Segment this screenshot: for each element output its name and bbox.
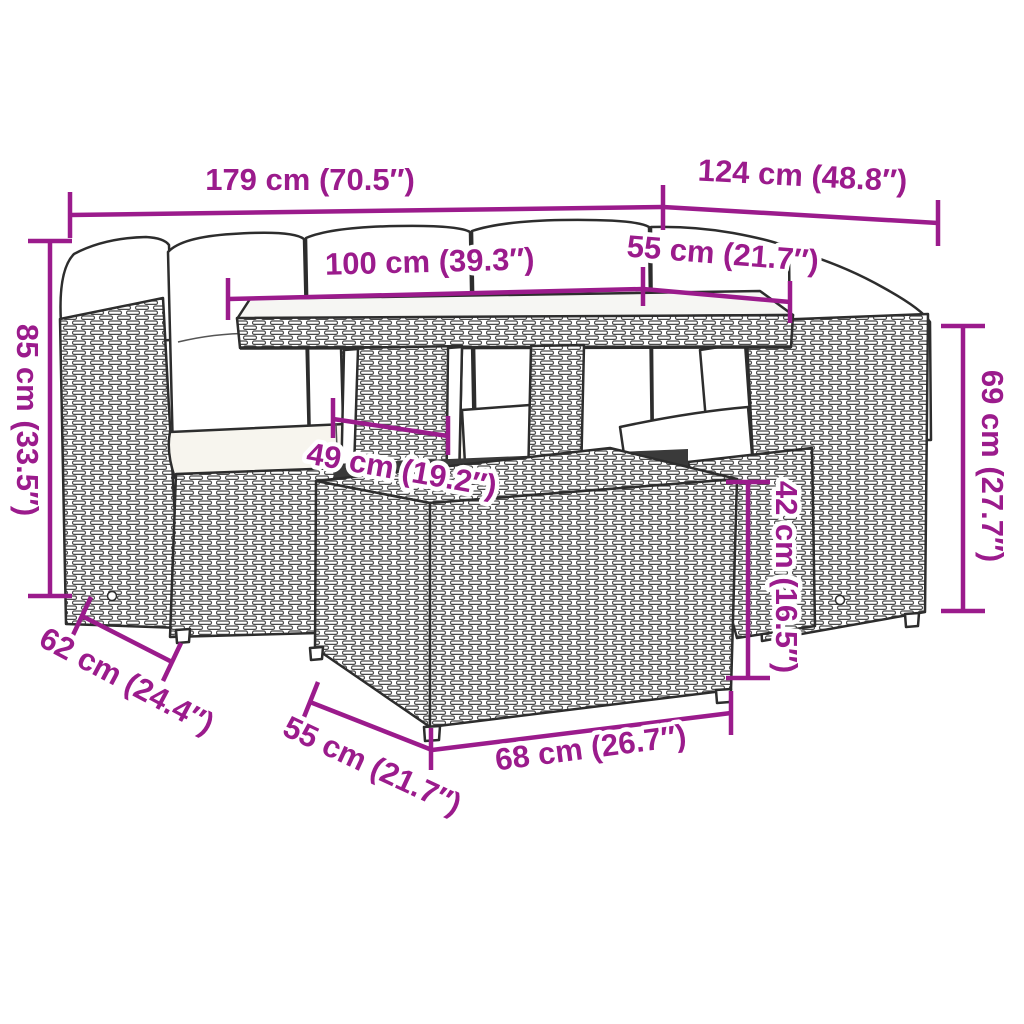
ottoman-foot [310,647,323,660]
left-arm-panel [60,298,181,628]
table-top-edge-band [237,315,793,348]
dimension-label: 100 cm (39.3″) [325,241,535,281]
dimension-backrest-height: 69 cm (27.7″) [941,326,1010,611]
furniture-dimension-illustration: 179 cm (70.5″) 124 cm (48.8″) 100 cm (39… [0,0,1024,1024]
screw-cap [108,592,117,601]
sofa-left-arm [60,298,181,628]
dimension-label: 124 cm (48.8″) [697,153,908,199]
dimension-label: 179 cm (70.5″) [205,162,415,197]
dimension-line [70,207,663,215]
dimension-label: 68 cm (26.7″) [493,718,688,778]
dimension-diagram: 179 cm (70.5″) 124 cm (48.8″) 100 cm (39… [0,0,1024,1024]
ottoman-right-face [430,479,737,727]
ottoman [310,448,737,741]
table-band-shadow [240,347,791,348]
sofa-foot [905,613,919,627]
dimension-line [663,207,938,223]
seat-cushion-under-table [462,405,533,464]
sofa-foot [176,629,190,643]
screw-cap [836,596,845,605]
ottoman-left-face [315,481,430,727]
dimension-label: 85 cm (33.5″) [10,324,45,516]
dimension-tick [163,643,181,681]
dimension-label: 42 cm (16.5″) [769,481,804,673]
dimension-label: 69 cm (27.7″) [975,370,1010,562]
